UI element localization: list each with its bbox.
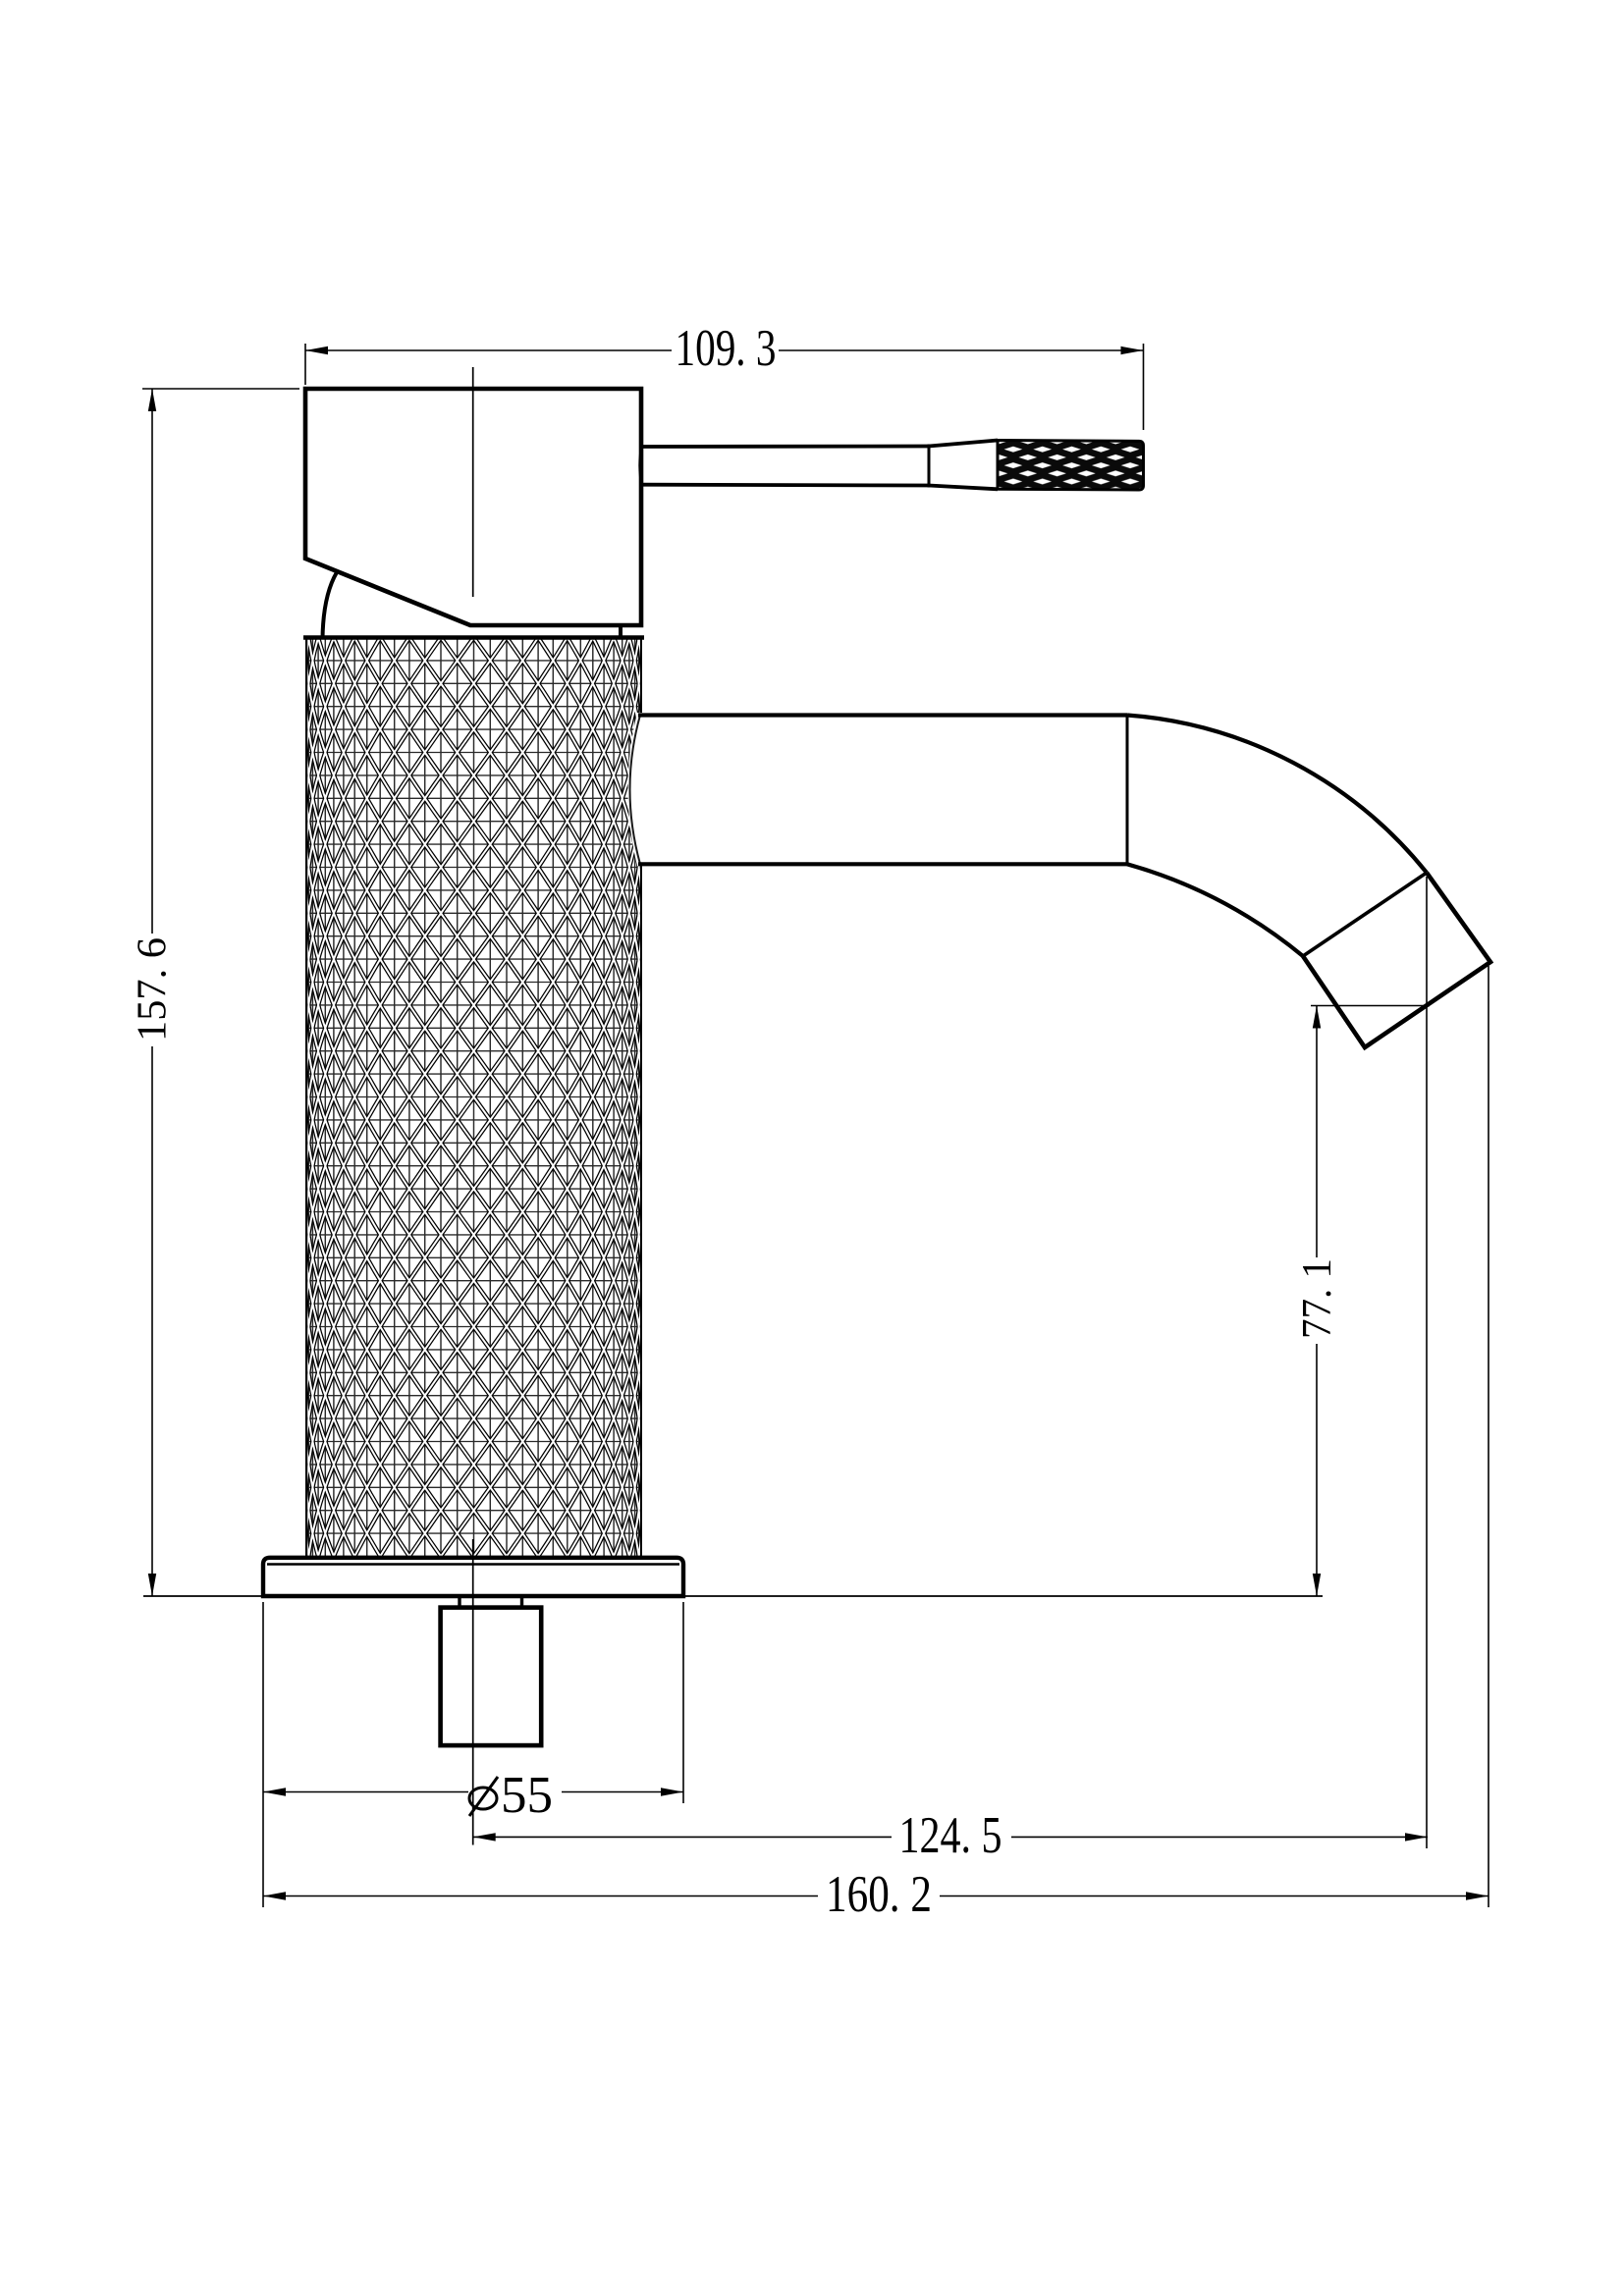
svg-text:157. 6: 157. 6 xyxy=(131,937,176,1041)
svg-text:109. 3: 109. 3 xyxy=(676,320,777,377)
svg-text:160. 2: 160. 2 xyxy=(826,1866,932,1923)
svg-text:77. 1: 77. 1 xyxy=(1295,1258,1340,1339)
svg-text:55: 55 xyxy=(501,1767,553,1824)
svg-text:124. 5: 124. 5 xyxy=(899,1807,1002,1864)
